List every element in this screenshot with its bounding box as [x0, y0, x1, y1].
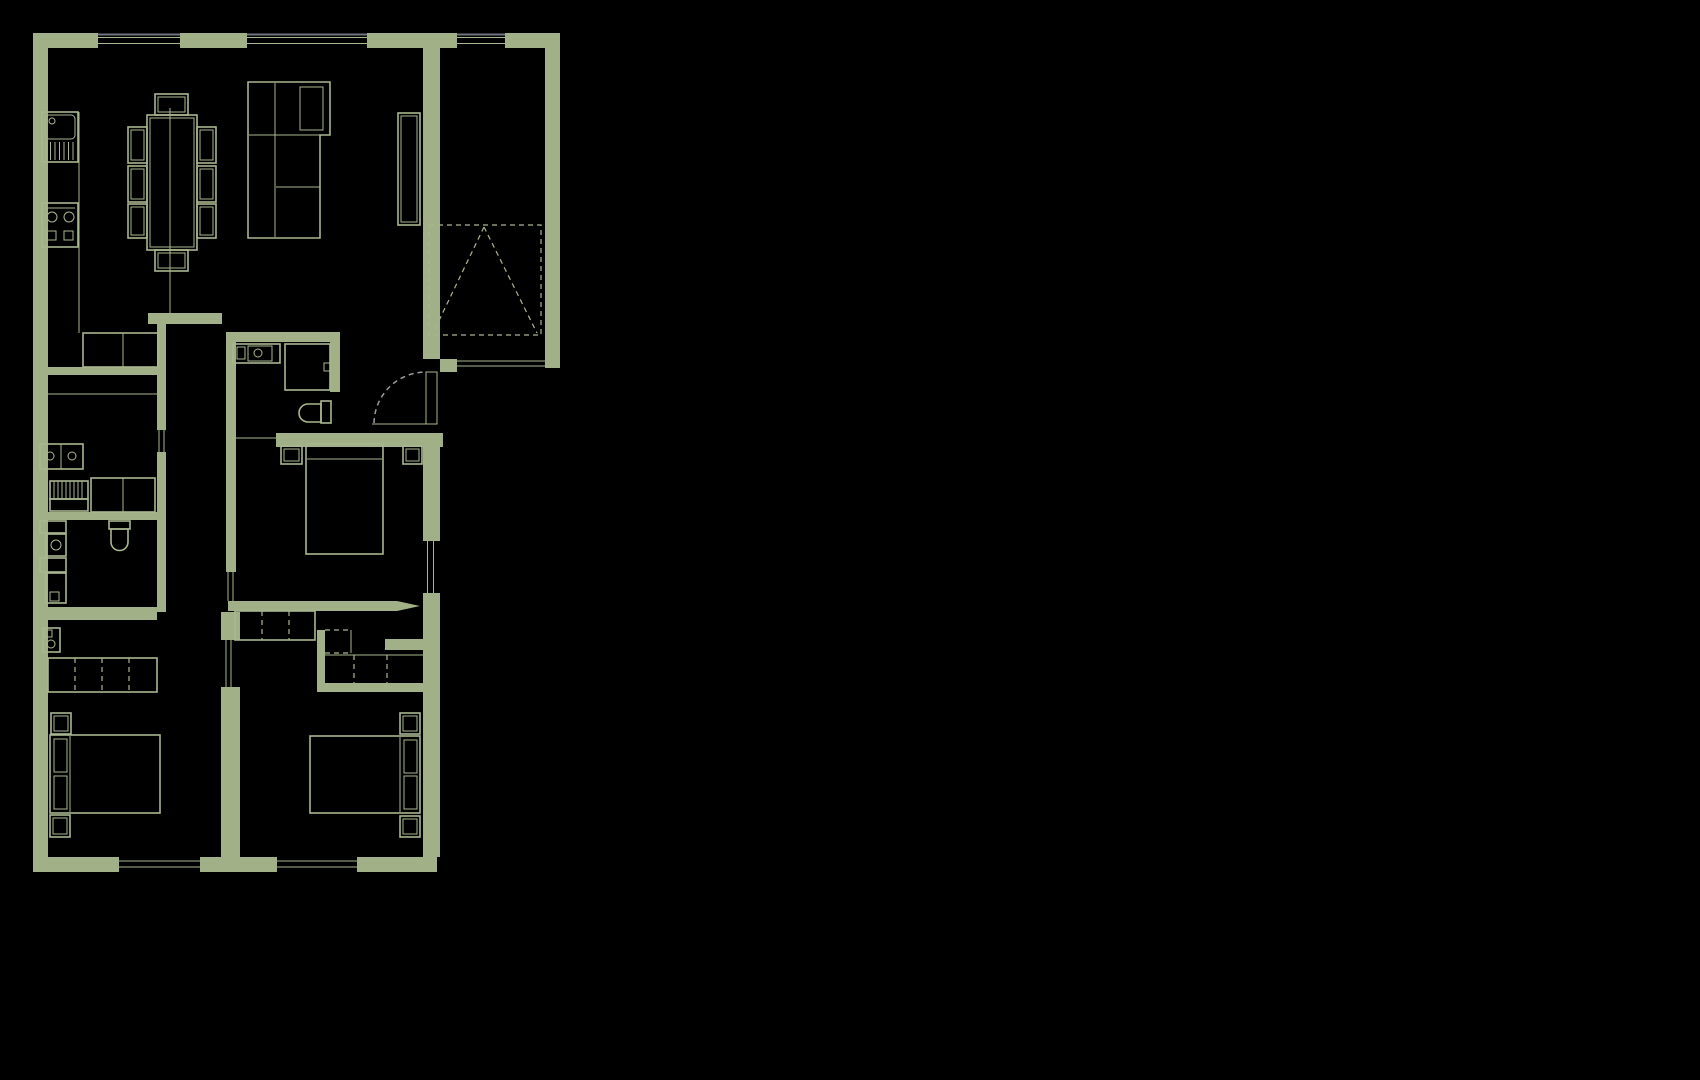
bedroom3-left-wall-b: [221, 687, 240, 858]
top-wall-d: [505, 33, 560, 48]
sofa-chaise: [300, 87, 323, 130]
hall-bottom-wall: [228, 601, 372, 611]
closet-wall-h2: [385, 639, 423, 650]
top-wall-b: [180, 33, 247, 48]
bottom-wall-a: [48, 857, 119, 872]
shower: [285, 344, 330, 390]
wc-right-wall: [330, 342, 340, 392]
nightstand-right-top-inner: [403, 716, 417, 731]
dining-chair-left-3-inner: [131, 207, 144, 235]
garage-right-wall: [545, 48, 560, 368]
utility-mid-wall: [48, 512, 157, 520]
hall-bottom-wall-taper: [372, 601, 420, 611]
bed-mid: [306, 444, 383, 554]
stove-burner-2: [64, 212, 74, 222]
shower-handle: [324, 363, 330, 371]
garage-door-stub: [440, 359, 457, 372]
bedroom-left-radiator-drum: [47, 640, 55, 648]
bottom-wall-c: [357, 857, 437, 872]
hall-left-wall-b: [157, 452, 166, 612]
toilet-mid-bowl: [299, 404, 321, 422]
kitchen-sink-tap: [49, 118, 55, 124]
bed-right-pillow-1: [404, 740, 417, 773]
closet-wall-v: [317, 630, 325, 690]
washbasin-drain: [51, 540, 61, 550]
bed-left-pillow-1: [54, 739, 67, 772]
entry-door-leaf: [426, 372, 437, 424]
toilet-mid-tank: [321, 401, 331, 423]
dining-chair-right-1-inner: [200, 130, 213, 160]
top-wall-a: [33, 33, 98, 48]
bed-right-pillow-2: [404, 776, 417, 809]
closet-right-reachin: [235, 611, 315, 640]
washer-drum-right: [68, 452, 76, 460]
wc-top-wall: [226, 332, 340, 342]
sofa-outline: [248, 82, 330, 238]
entry-door-arc: [374, 372, 426, 423]
bath-bottom-wall: [48, 607, 157, 620]
right-wall-lower: [423, 593, 440, 857]
nightstand-mid-left-inner: [284, 449, 299, 461]
bidet: [46, 573, 66, 603]
dining-chair-right-2-inner: [200, 169, 213, 199]
nightstand-right-bottom-inner: [403, 819, 417, 834]
stove-burner-3: [47, 231, 56, 240]
nightstand-mid-right-inner: [406, 449, 419, 461]
washbasin: [46, 534, 66, 556]
garage-door-swing-right: [484, 227, 537, 333]
dining-chair-left-1-inner: [131, 130, 144, 160]
toilet-bath-tank: [109, 521, 130, 529]
bottom-wall-b: [200, 857, 277, 872]
radiator-shelf: [50, 499, 88, 511]
dining-chair-bottom-inner: [158, 253, 185, 268]
bed-left-pillow-2: [54, 776, 67, 809]
utility-top-wall: [48, 367, 157, 375]
wc-left-wall: [226, 332, 236, 572]
closet-wall-h: [317, 683, 423, 692]
toilet-bath-bowl: [111, 529, 128, 551]
nightstand-left-bottom-inner: [53, 818, 67, 834]
dining-table: [147, 115, 197, 250]
garage-door-swing-left: [433, 227, 484, 333]
nightstand-left-top-inner: [54, 716, 68, 731]
right-wall-upper: [423, 436, 440, 541]
wc-washer-drum: [254, 349, 262, 357]
dining-chair-right-3-inner: [200, 207, 213, 235]
dining-chair-left-2-inner: [131, 169, 144, 199]
wc-washer: [248, 346, 272, 361]
dining-chair-top-inner: [158, 97, 185, 112]
hall-left-wall-a: [157, 313, 166, 430]
bedroom3-left-wall-a: [221, 612, 240, 640]
dining-table-inner: [150, 118, 194, 247]
top-wall-c: [367, 33, 457, 48]
stove-burner-4: [64, 231, 73, 240]
kitchen-closet: [83, 333, 158, 367]
vestibule-bottom-wall: [276, 433, 443, 447]
sideboard-inner: [401, 116, 417, 222]
stove-burner-1: [47, 212, 57, 222]
garage-left-wall: [423, 48, 440, 359]
garage-door-swing-rect: [429, 225, 541, 335]
wc-washer-panel: [237, 347, 245, 359]
bidet-detail: [50, 592, 59, 601]
floor-plan: [0, 0, 1700, 1080]
floor-plan-canvas: [0, 0, 1700, 1080]
